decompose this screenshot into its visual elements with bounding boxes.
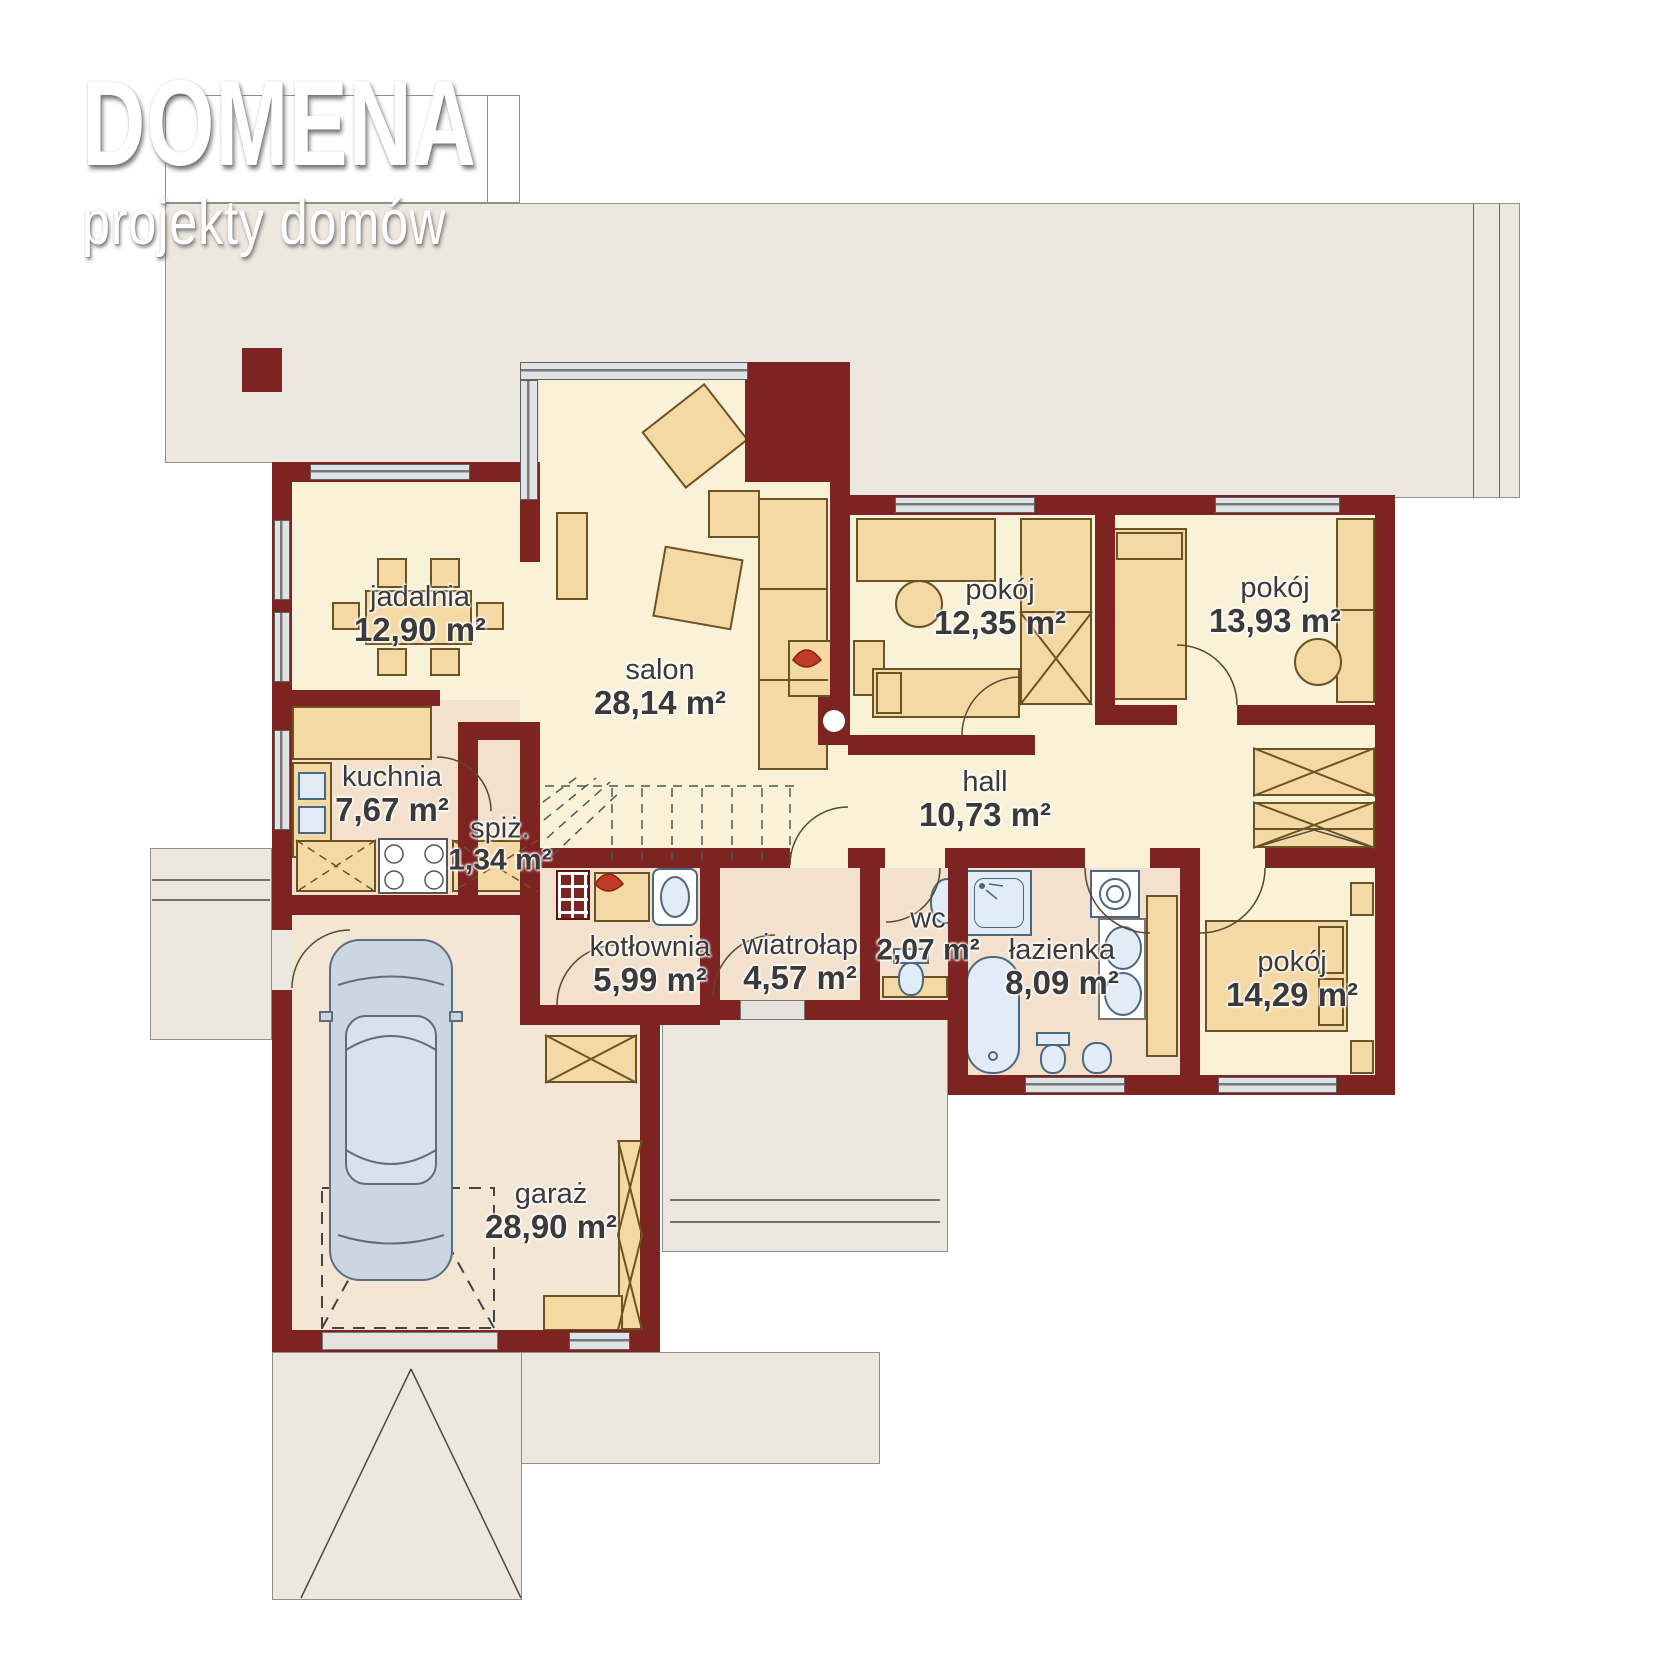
room-area: 2,07 m² <box>876 934 979 966</box>
room-area: 10,73 m² <box>919 798 1051 833</box>
window <box>1218 1077 1337 1093</box>
garage-storage <box>545 1035 637 1083</box>
wall <box>948 868 968 1095</box>
wall <box>1237 705 1375 725</box>
room-area: 12,90 m² <box>354 613 486 648</box>
toilet-bowl <box>1040 1044 1066 1074</box>
pillow <box>1116 532 1183 560</box>
brand-title: DOMENA <box>82 62 477 184</box>
kitchen-sink-bowl <box>298 772 326 800</box>
dining-chair <box>377 648 407 676</box>
room-label-jadalnia: jadalnia 12,90 m² <box>354 582 486 648</box>
window <box>274 730 290 830</box>
window <box>1215 497 1340 513</box>
nightstand <box>1350 882 1374 916</box>
window-alcove-shelf <box>1253 828 1375 848</box>
dining-chair <box>430 648 460 676</box>
utility-sink-bowl <box>660 876 690 918</box>
room-name: kuchnia <box>342 762 442 793</box>
wall <box>830 482 850 735</box>
wall <box>848 735 1035 755</box>
wall <box>945 848 1085 868</box>
garage-shelf <box>543 1295 623 1331</box>
washing-machine <box>1090 870 1140 918</box>
coffee-table <box>708 490 760 538</box>
toilet-bowl <box>898 962 924 996</box>
wall <box>745 362 850 482</box>
room-name: pokój <box>1240 573 1309 604</box>
wall <box>1095 705 1177 725</box>
room-label-kuchnia: kuchnia 7,67 m² <box>335 762 449 828</box>
roof-edge-line-1 <box>1473 204 1474 497</box>
bathroom-cabinet <box>1146 895 1178 1057</box>
room-area: 14,29 m² <box>1226 978 1358 1013</box>
terrace-roof-overhang-east <box>848 462 1520 498</box>
stove <box>378 838 448 894</box>
driveway-side-apron <box>498 1352 880 1464</box>
room-label-salon: salon 28,14 m² <box>594 655 726 721</box>
room-name: kotłownia <box>590 932 711 963</box>
tv-cabinet <box>556 512 588 600</box>
room-name: wiatrołap <box>742 930 858 961</box>
bay-window <box>520 362 748 380</box>
armchair <box>652 546 743 631</box>
room-area: 28,90 m² <box>485 1210 617 1245</box>
wall <box>272 895 540 915</box>
wall <box>1375 495 1395 1095</box>
bay-window <box>520 380 538 500</box>
kitchen-sink-bowl <box>298 806 326 834</box>
wall <box>292 690 440 706</box>
wall <box>540 848 790 868</box>
room-name: garaż <box>515 1179 588 1210</box>
window <box>274 520 290 600</box>
room-area: 7,67 m² <box>335 793 449 828</box>
entrance-porch <box>662 1015 948 1252</box>
shower-tray <box>974 878 1024 928</box>
wall <box>700 1000 740 1020</box>
boiler-stove <box>594 872 650 922</box>
kitchen-base-cabinet <box>296 840 376 892</box>
room-fill-opening-jadalnia-salon <box>520 562 540 722</box>
room-fill-opening-salon-hall <box>830 735 848 868</box>
room-name: pokój <box>1257 947 1326 978</box>
room-label-wc: wc 2,07 m² <box>876 904 979 967</box>
window <box>895 497 1035 513</box>
brand-logo: DOMENA projekty domów <box>82 62 630 255</box>
room-name: salon <box>625 655 694 686</box>
room-area: 28,14 m² <box>594 686 726 721</box>
wall <box>1095 515 1115 725</box>
room-name: spiż. <box>470 814 530 845</box>
nightstand <box>1350 1040 1374 1074</box>
roof-edge-line-2 <box>1499 204 1500 497</box>
side-porch-left <box>150 848 272 1040</box>
wall <box>1150 848 1200 868</box>
room-name: wc <box>910 904 945 935</box>
window <box>274 612 290 682</box>
room-label-garaz: garaż 28,90 m² <box>485 1179 617 1245</box>
room-name: łazienka <box>1009 935 1115 966</box>
window <box>310 464 470 480</box>
room-area: 8,09 m² <box>1005 966 1119 1001</box>
garage-side-door-opening <box>272 930 292 990</box>
wall <box>848 848 885 868</box>
room-label-spizarnia: spiż. 1,34 m² <box>448 814 551 877</box>
wall <box>1265 848 1375 868</box>
floorplan-canvas: jadalnia 12,90 m² salon 28,14 m² pokój 1… <box>0 0 1680 1680</box>
window <box>1025 1077 1125 1093</box>
wall <box>520 1005 720 1025</box>
room-label-wiatrolap: wiatrołap 4,57 m² <box>742 930 858 996</box>
hall-wardrobe <box>1253 748 1375 796</box>
garage-door <box>322 1332 498 1350</box>
room-area: 1,34 m² <box>448 844 551 876</box>
room-name: pokój <box>965 575 1034 606</box>
brand-subtitle: projekty domów <box>82 192 521 255</box>
room-name: jadalnia <box>370 582 470 613</box>
window <box>569 1332 630 1350</box>
kitchen-counter <box>292 706 432 760</box>
room-label-pokoj-2: pokój 13,93 m² <box>1209 573 1341 639</box>
room-label-kotlownia: kotłownia 5,99 m² <box>590 932 711 998</box>
entrance-door-sill <box>740 1000 805 1020</box>
chimney <box>242 348 282 392</box>
boiler <box>556 870 590 920</box>
desk-wardrobe <box>1336 518 1375 703</box>
room-area: 4,57 m² <box>743 961 857 996</box>
wall <box>640 1025 660 1352</box>
bidet <box>1082 1042 1112 1074</box>
pillow <box>876 672 902 714</box>
driveway <box>272 1352 522 1600</box>
room-name: hall <box>962 767 1007 798</box>
room-area: 5,99 m² <box>593 963 707 998</box>
room-label-hall: hall 10,73 m² <box>919 767 1051 833</box>
room-label-lazienka: łazienka 8,09 m² <box>1005 935 1119 1001</box>
room-area: 13,93 m² <box>1209 604 1341 639</box>
room-label-pokoj-3: pokój 14,29 m² <box>1226 947 1358 1013</box>
room-area: 12,35 m² <box>934 606 1066 641</box>
wall <box>860 1000 968 1020</box>
wall <box>1180 868 1200 1075</box>
desk <box>856 518 996 582</box>
room-label-pokoj-1: pokój 12,35 m² <box>934 575 1066 641</box>
